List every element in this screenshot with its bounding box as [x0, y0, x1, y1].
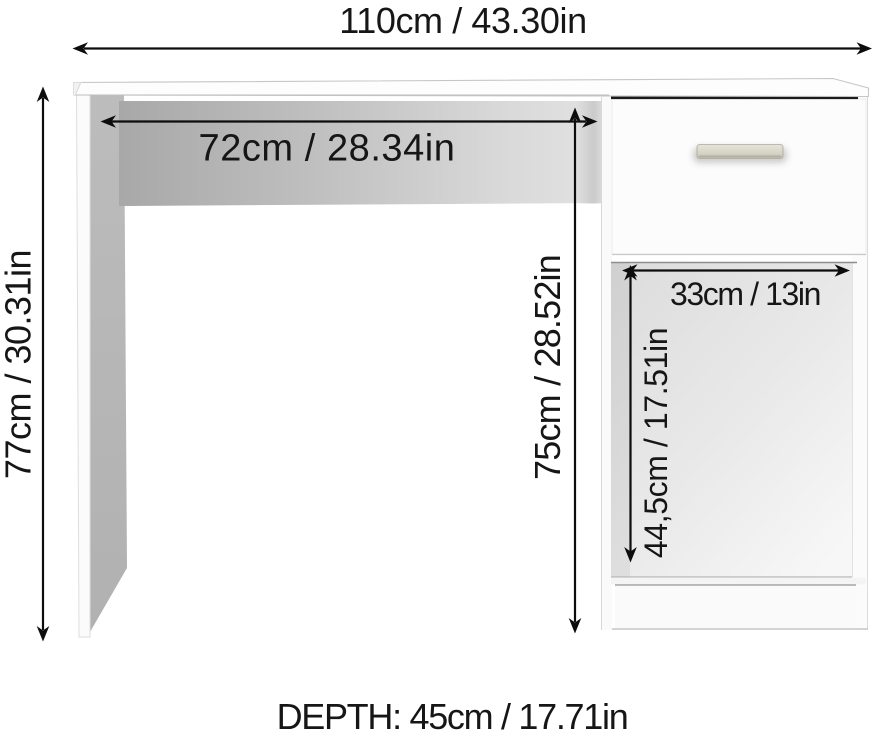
svg-text:33cm / 13in: 33cm / 13in [670, 276, 820, 312]
svg-text:44,5cm / 17.51in: 44,5cm / 17.51in [638, 328, 674, 558]
svg-text:72cm / 28.34in: 72cm / 28.34in [199, 128, 456, 170]
svg-text:110cm / 43.30in: 110cm / 43.30in [339, 0, 587, 41]
svg-text:77cm / 30.31in: 77cm / 30.31in [0, 250, 39, 479]
svg-text:DEPTH: 45cm / 17.71in: DEPTH: 45cm / 17.71in [277, 696, 628, 737]
svg-text:75cm / 28.52in: 75cm / 28.52in [527, 255, 568, 480]
